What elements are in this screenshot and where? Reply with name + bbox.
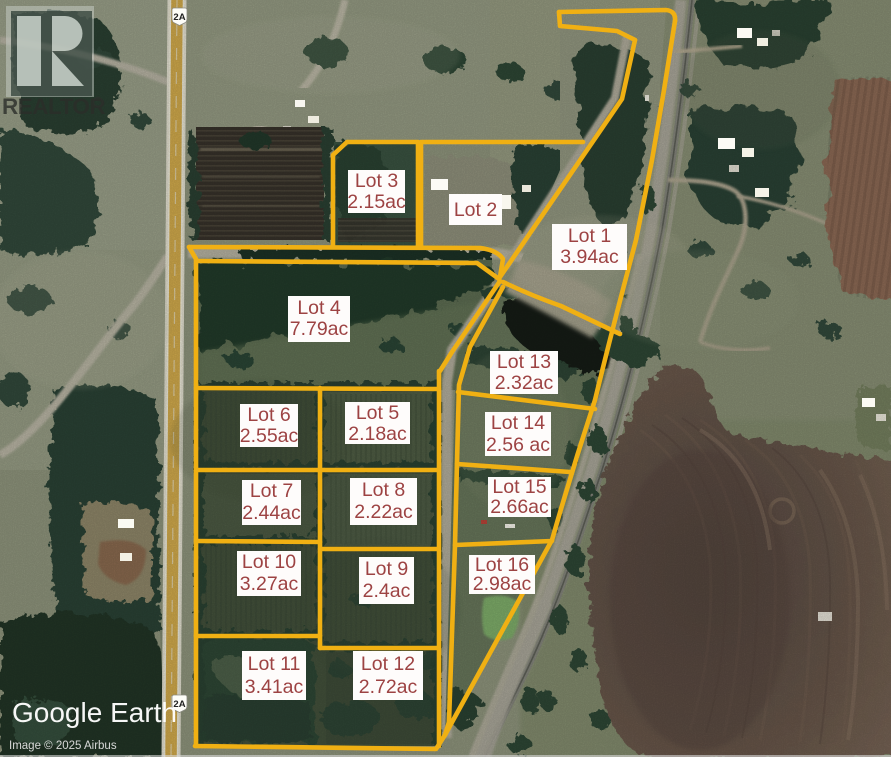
svg-text:2.4ac: 2.4ac xyxy=(363,580,411,602)
svg-text:2.44ac: 2.44ac xyxy=(242,502,301,524)
svg-text:2A: 2A xyxy=(173,12,185,23)
svg-text:Lot 11: Lot 11 xyxy=(248,653,301,675)
svg-text:3.94ac: 3.94ac xyxy=(560,246,619,268)
svg-text:2.15ac: 2.15ac xyxy=(347,191,406,213)
svg-text:2.56 ac: 2.56 ac xyxy=(486,434,550,456)
svg-text:REALTOR: REALTOR xyxy=(2,94,105,119)
svg-text:2.22ac: 2.22ac xyxy=(354,501,413,523)
svg-text:2.32ac: 2.32ac xyxy=(495,372,554,394)
svg-text:Lot 13: Lot 13 xyxy=(497,351,551,373)
svg-text:3.27ac: 3.27ac xyxy=(240,573,299,595)
svg-text:Lot 2: Lot 2 xyxy=(454,199,497,221)
svg-text:Lot 8: Lot 8 xyxy=(362,479,405,501)
svg-text:Lot 10: Lot 10 xyxy=(242,551,296,573)
svg-text:2.18ac: 2.18ac xyxy=(348,423,407,445)
svg-text:Lot 6: Lot 6 xyxy=(247,404,290,426)
svg-text:Image © 2025 Airbus: Image © 2025 Airbus xyxy=(9,740,117,752)
svg-text:Lot 1: Lot 1 xyxy=(568,225,611,247)
svg-text:3.41ac: 3.41ac xyxy=(245,676,304,698)
svg-text:Lot 3: Lot 3 xyxy=(355,170,398,192)
svg-text:Lot 14: Lot 14 xyxy=(491,412,545,434)
svg-text:Lot 4: Lot 4 xyxy=(297,297,341,319)
svg-text:7.79ac: 7.79ac xyxy=(290,318,349,340)
svg-text:2.72ac: 2.72ac xyxy=(359,676,418,698)
svg-text:2.98ac: 2.98ac xyxy=(473,573,532,595)
svg-text:Lot 9: Lot 9 xyxy=(365,558,408,580)
svg-text:2.66ac: 2.66ac xyxy=(490,496,549,518)
svg-text:Lot 5: Lot 5 xyxy=(356,402,400,424)
svg-text:Lot 12: Lot 12 xyxy=(361,653,415,675)
svg-text:Google Earth: Google Earth xyxy=(12,697,177,728)
svg-text:2.55ac: 2.55ac xyxy=(240,425,299,447)
svg-text:Lot 15: Lot 15 xyxy=(492,476,546,498)
svg-text:Lot 7: Lot 7 xyxy=(250,480,293,502)
